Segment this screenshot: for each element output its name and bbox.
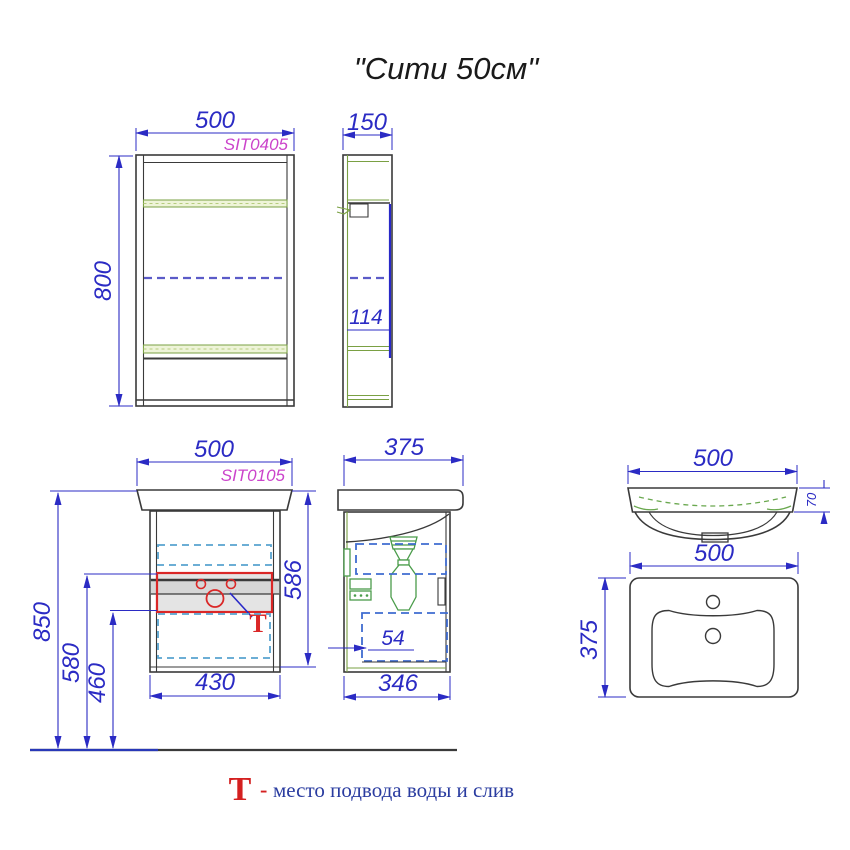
sink-front-view: 500 70 — [628, 445, 830, 542]
dim-sink-width: 500 — [693, 445, 734, 472]
furniture-drawing-svg: "Сити 50см" 500 SIT0405 800 114 150 — [0, 0, 850, 850]
dim-sink-top-width: 500 — [694, 540, 735, 567]
drain-flange — [390, 537, 417, 549]
hinge-block-upper — [350, 579, 371, 589]
dim-offset: 54 — [381, 627, 404, 650]
legend-text: место подвода воды и слив — [273, 778, 514, 802]
vanity-code: SIT0105 — [221, 466, 286, 485]
dim-body-width: 430 — [195, 669, 236, 696]
dim-body-depth: 346 — [378, 670, 419, 697]
sink-rim-side — [338, 490, 463, 510]
mirror-cabinet-code: SIT0405 — [224, 135, 289, 154]
dim-height-580: 580 — [58, 642, 85, 683]
dim-sink-top-depth: 375 — [576, 619, 603, 660]
technical-drawing-page: "Сити 50см" 500 SIT0405 800 114 150 — [0, 0, 850, 850]
dim-rim-height: 70 — [804, 492, 819, 507]
sink-rim-front — [137, 490, 292, 510]
mirror-cabinet-front-view: 500 SIT0405 800 — [90, 107, 294, 406]
sink-bowl-inner-curve — [649, 512, 777, 536]
hinge-plate — [344, 549, 350, 576]
dim-vanity-width: 500 — [194, 436, 235, 463]
mirror-side-body — [343, 155, 392, 407]
legend-dash: - — [260, 777, 267, 802]
hinge-screw — [366, 594, 369, 597]
dim-height-460: 460 — [84, 662, 111, 703]
page-title: "Сити 50см" — [354, 51, 541, 86]
rail-band-fill — [151, 580, 279, 594]
mirror-cabinet-body — [136, 155, 294, 406]
dim-mirror-inner: 114 — [349, 306, 382, 329]
dim-mirror-depth: 150 — [347, 109, 388, 136]
drain-nut — [398, 560, 409, 565]
dim-mirror-width: 500 — [195, 107, 236, 134]
dim-mirror-height: 800 — [90, 260, 117, 301]
dim-vanity-depth: 375 — [384, 434, 425, 461]
siphon-bottle-trap — [391, 565, 416, 610]
legend: Т - место подвода воды и слив — [229, 771, 514, 808]
hinge-screw — [354, 594, 357, 597]
hinge-screw — [360, 594, 363, 597]
vanity-side-view: 54 375 346 — [328, 434, 463, 700]
legend-symbol: Т — [229, 771, 252, 808]
dim-vanity-total-height: 586 — [280, 559, 307, 600]
sink-rim — [628, 488, 797, 512]
dim-height-850: 850 — [29, 601, 56, 642]
mirror-cabinet-side-view: 114 150 — [337, 109, 392, 407]
vanity-front-view: Т 500 SIT0105 586 850 580 460 430 — [29, 436, 316, 748]
sink-top-view: 500 375 — [576, 540, 798, 697]
